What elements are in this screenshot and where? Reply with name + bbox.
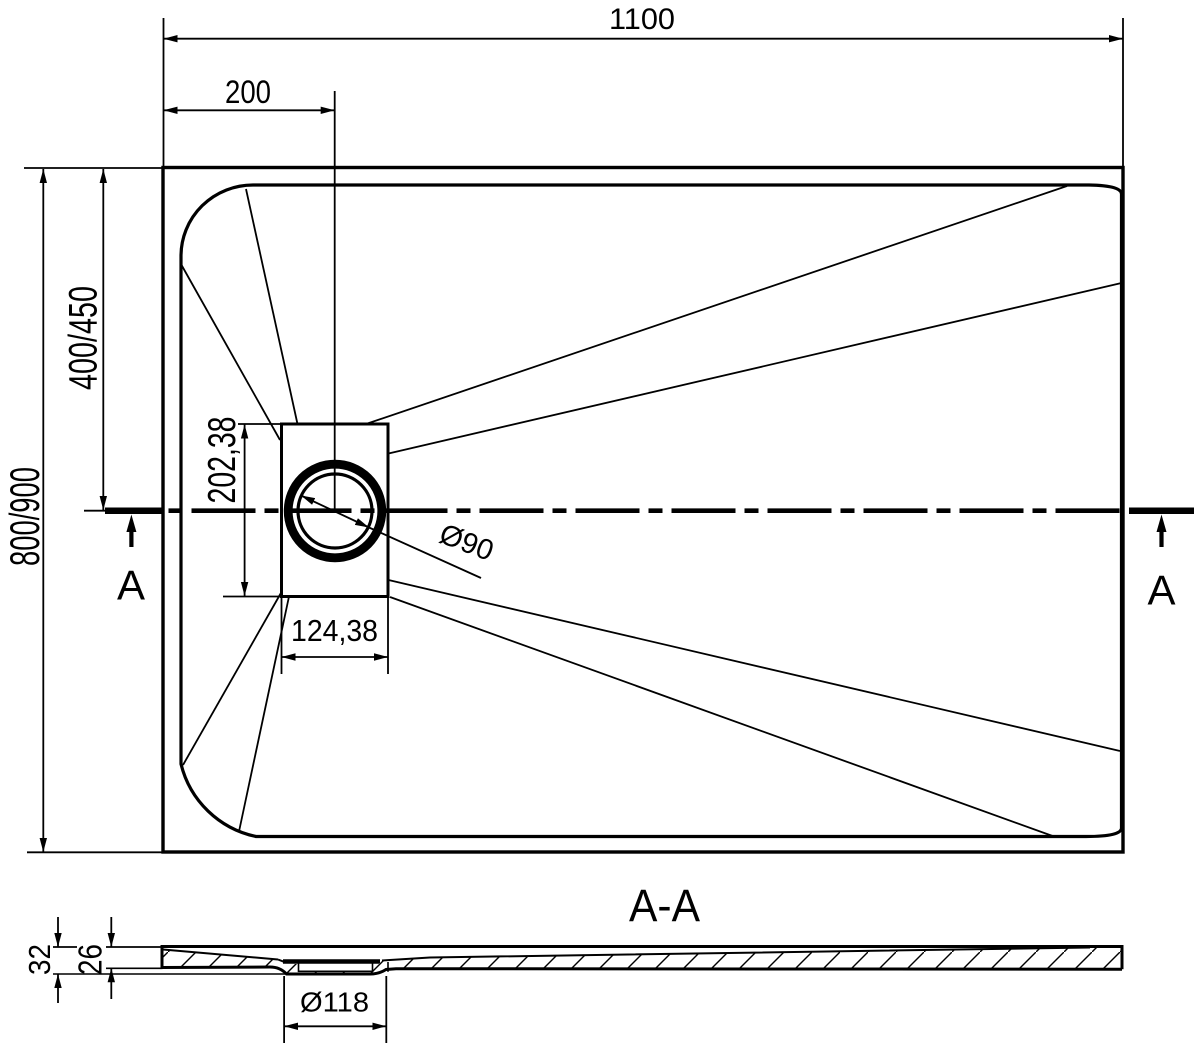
svg-text:400/450: 400/450 <box>62 286 106 390</box>
svg-text:202,38: 202,38 <box>201 417 244 504</box>
svg-text:Ø118: Ø118 <box>300 987 369 1018</box>
svg-text:1100: 1100 <box>609 3 675 36</box>
svg-text:26: 26 <box>72 944 109 975</box>
svg-text:A: A <box>117 562 145 609</box>
svg-text:200: 200 <box>225 74 271 110</box>
svg-text:800/900: 800/900 <box>1 467 48 566</box>
svg-text:32: 32 <box>22 944 57 975</box>
svg-text:A: A <box>1147 567 1175 614</box>
svg-text:A-A: A-A <box>629 880 700 931</box>
svg-text:124,38: 124,38 <box>291 613 378 648</box>
